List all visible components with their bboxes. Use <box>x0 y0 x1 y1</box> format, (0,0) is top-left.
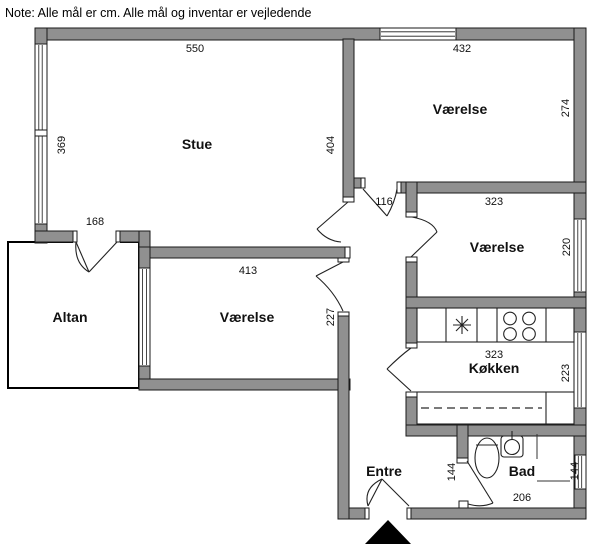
opening-entrance-door <box>365 507 411 520</box>
jamb <box>338 258 349 262</box>
jamb <box>343 197 354 202</box>
wall-top <box>35 28 586 40</box>
door-vaerelse-bottom <box>316 262 343 311</box>
dim-koekken-height: 223 <box>560 364 572 382</box>
window-vaerelse-mid-right <box>574 219 586 292</box>
dim-vaerelse-top-width: 432 <box>453 43 471 55</box>
jamb <box>116 231 120 242</box>
jamb <box>406 257 417 262</box>
dim-hall-opening: 116 <box>375 196 393 208</box>
room-label-vaerelse-bottom: Værelse <box>220 309 275 325</box>
dim-bad-width: 206 <box>513 492 531 504</box>
dim-balcony-door: 168 <box>86 216 104 228</box>
window-stue-left <box>35 44 47 224</box>
jamb <box>365 508 369 519</box>
dim-stue-height-left: 369 <box>56 136 68 154</box>
door-kitchen <box>387 348 411 391</box>
jamb <box>407 508 411 519</box>
room-label-entre: Entre <box>366 463 402 479</box>
wall-stue-right <box>343 39 354 202</box>
jamb <box>361 178 365 188</box>
jamb <box>397 182 401 193</box>
dim-stue-height-right: 404 <box>325 136 337 154</box>
jamb <box>345 247 350 258</box>
opening-balcony-door <box>73 230 120 243</box>
floor-plan: Note: Alle mål er cm. Alle mål og invent… <box>0 0 600 552</box>
toilet-icon <box>475 438 499 478</box>
room-label-vaerelse-top: Værelse <box>433 101 488 117</box>
jamb <box>457 458 468 463</box>
dim-vaerelse-top-height: 274 <box>560 99 572 117</box>
dim-stue-width: 550 <box>186 43 204 55</box>
room-label-bad: Bad <box>509 463 535 479</box>
door-entrance <box>367 479 409 506</box>
wall-kitchen-top <box>406 297 586 308</box>
dim-bad-left: 144 <box>446 463 458 481</box>
jamb <box>406 392 417 397</box>
dim-bad-window: 144 <box>569 462 581 480</box>
dim-vaerelse-mid-height: 220 <box>561 238 573 256</box>
window-kitchen-right <box>574 332 586 408</box>
jamb <box>459 501 468 508</box>
wall-vaerelse-s-bottom <box>139 379 350 390</box>
jamb <box>406 343 417 348</box>
wall-vaerelse-s-top <box>139 247 350 258</box>
dim-koekken-width: 323 <box>485 349 503 361</box>
wall-corridor-left <box>338 316 349 519</box>
dim-vaerelse-bottom-width: 413 <box>239 265 257 277</box>
jamb <box>338 312 349 316</box>
door-vaerelse-mid <box>411 217 437 257</box>
room-label-stue: Stue <box>182 136 213 152</box>
jamb <box>73 231 77 242</box>
wall-rooms-divider <box>397 182 586 193</box>
dim-vaerelse-mid-width: 323 <box>485 196 503 208</box>
wall-kitchen-bottom <box>406 425 586 436</box>
window-vaerelse-top <box>380 28 456 40</box>
jamb <box>406 212 417 217</box>
door-stue <box>317 202 348 242</box>
kitchen-counter-top <box>417 308 574 342</box>
floor-plan-page: Note: Alle mål er cm. Alle mål og invent… <box>0 0 600 552</box>
room-label-vaerelse-mid: Værelse <box>470 239 525 255</box>
plan-note: Note: Alle mål er cm. Alle mål og invent… <box>5 6 311 20</box>
window-vaerelse-s-left <box>139 268 150 366</box>
wall-bad-stub <box>457 425 468 463</box>
room-label-altan: Altan <box>53 309 88 325</box>
room-label-koekken: Køkken <box>469 360 520 376</box>
dim-vaerelse-bottom-height: 227 <box>325 308 337 326</box>
entrance-arrow-icon <box>365 520 411 544</box>
